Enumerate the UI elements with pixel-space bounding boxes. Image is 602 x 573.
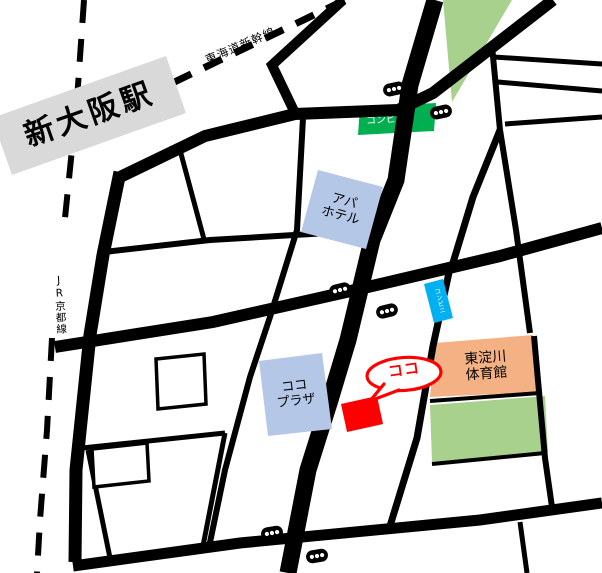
koko-plaza-line2: プラザ: [276, 392, 316, 411]
road-right-edge-3: [505, 117, 602, 124]
destination-label-text: ココ: [387, 359, 421, 380]
access-map: コンビニ: [0, 0, 602, 573]
building-outline-1: [156, 354, 206, 409]
road-right-branch-left: [452, 130, 500, 266]
road-right-edge-1: [494, 57, 602, 64]
traffic-light-icon: [375, 302, 399, 320]
road-bottom-right-stub: [520, 522, 527, 573]
building-outline-2: [92, 443, 149, 487]
destination-red-box: [341, 396, 383, 432]
convenience-cyan-text: コンビニ: [432, 287, 445, 314]
jr-label-text: JR京都線: [52, 274, 67, 335]
traffic-light-icon: [305, 548, 329, 565]
gym-line2: 体育館: [465, 365, 508, 384]
road-thin-connector: [180, 150, 205, 243]
road-block-sw-1: [82, 433, 225, 448]
road-right-edge-2: [498, 82, 602, 91]
road-right-branch-right: [500, 130, 530, 333]
park-south: [430, 396, 548, 462]
road-thin-parallel-left: [208, 118, 303, 552]
road-thin-upper-mid: [104, 232, 345, 252]
gym-label: 東淀川 体育館: [435, 335, 537, 398]
koko-plaza-label: ココ プラザ: [259, 353, 332, 436]
jr-kyoto-line-lower: [37, 338, 52, 573]
